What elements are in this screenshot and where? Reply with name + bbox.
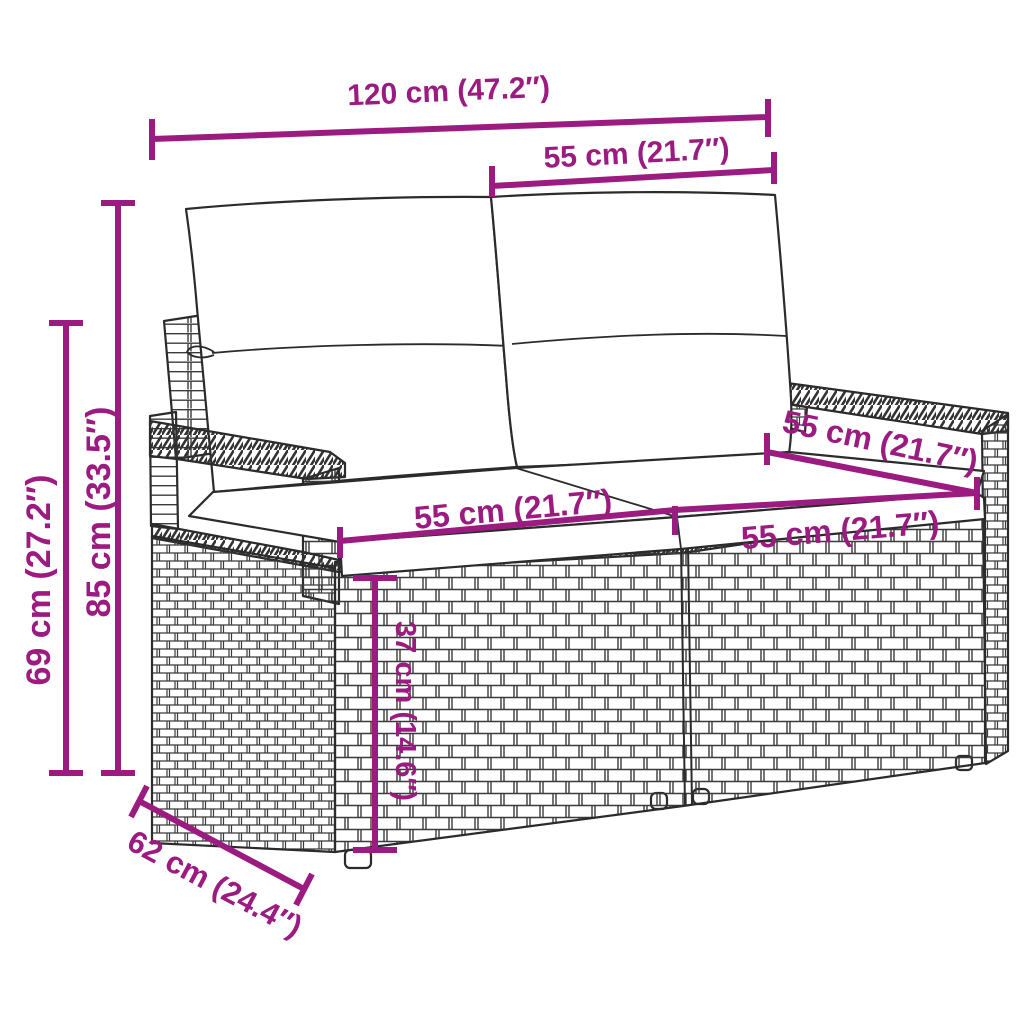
back-cushion-right	[491, 192, 791, 467]
dimension-line	[492, 170, 774, 186]
dimension-label: 85 cm (33.5″)	[80, 407, 118, 618]
dimension-label: 37 cm (14.6″)	[389, 621, 421, 801]
dimension-label: 120 cm (47.2″)	[347, 71, 551, 113]
sofa-dimension-drawing: 120 cm (47.2″) 55 cm (21.7″) 85 cm (33.5…	[0, 0, 1024, 1024]
dimension-width-backrest-section: 55 cm (21.7″)	[492, 132, 774, 197]
dimension-label: 69 cm (27.2″)	[20, 475, 58, 686]
product-dimension-diagram: 120 cm (47.2″) 55 cm (21.7″) 85 cm (33.5…	[0, 0, 1024, 1024]
dimension-height-armrest: 69 cm (27.2″)	[20, 323, 83, 773]
base-left-face	[152, 536, 335, 852]
dimension-height-overall: 85 cm (33.5″)	[80, 203, 135, 773]
dimension-label: 55 cm (21.7″)	[543, 132, 731, 175]
dimension-tick	[296, 874, 312, 905]
